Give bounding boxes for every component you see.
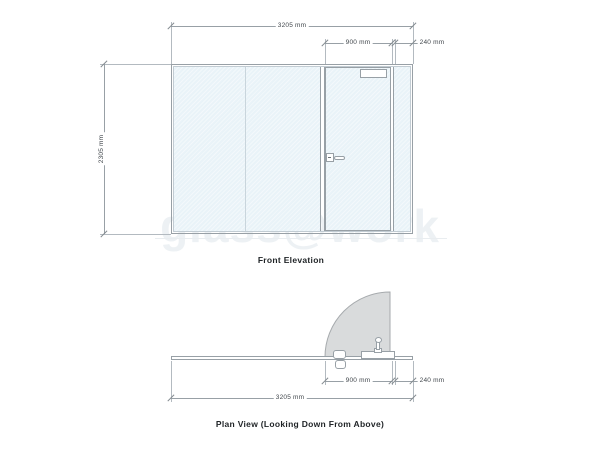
side-panel-width-label: 240 mm — [418, 39, 447, 47]
extension-line — [100, 234, 171, 235]
door-handle-plan-top — [333, 350, 346, 359]
floor-shadow-line — [155, 238, 447, 239]
dimension-line — [395, 43, 419, 44]
plan-overall-width-label: 3205 mm — [274, 394, 307, 402]
pivot-lever-cap — [375, 337, 382, 343]
door-handle-plan-bottom — [335, 360, 346, 369]
dimension-line — [395, 381, 419, 382]
plan-side-panel-width-label: 240 mm — [418, 377, 447, 385]
front-elevation-title: Front Elevation — [258, 255, 324, 265]
extension-line — [171, 22, 172, 64]
partition-frame-inner — [173, 66, 411, 232]
drawing-canvas: glass@work 3205 mm 900 mm 24 — [0, 0, 600, 450]
plan-door-width-label: 900 mm — [344, 377, 373, 385]
extension-line — [100, 64, 171, 65]
door-width-label: 900 mm — [344, 39, 373, 47]
plan-view-title: Plan View (Looking Down From Above) — [216, 419, 384, 429]
height-label: 2305 mm — [98, 133, 106, 166]
overall-width-label: 3205 mm — [276, 22, 309, 30]
